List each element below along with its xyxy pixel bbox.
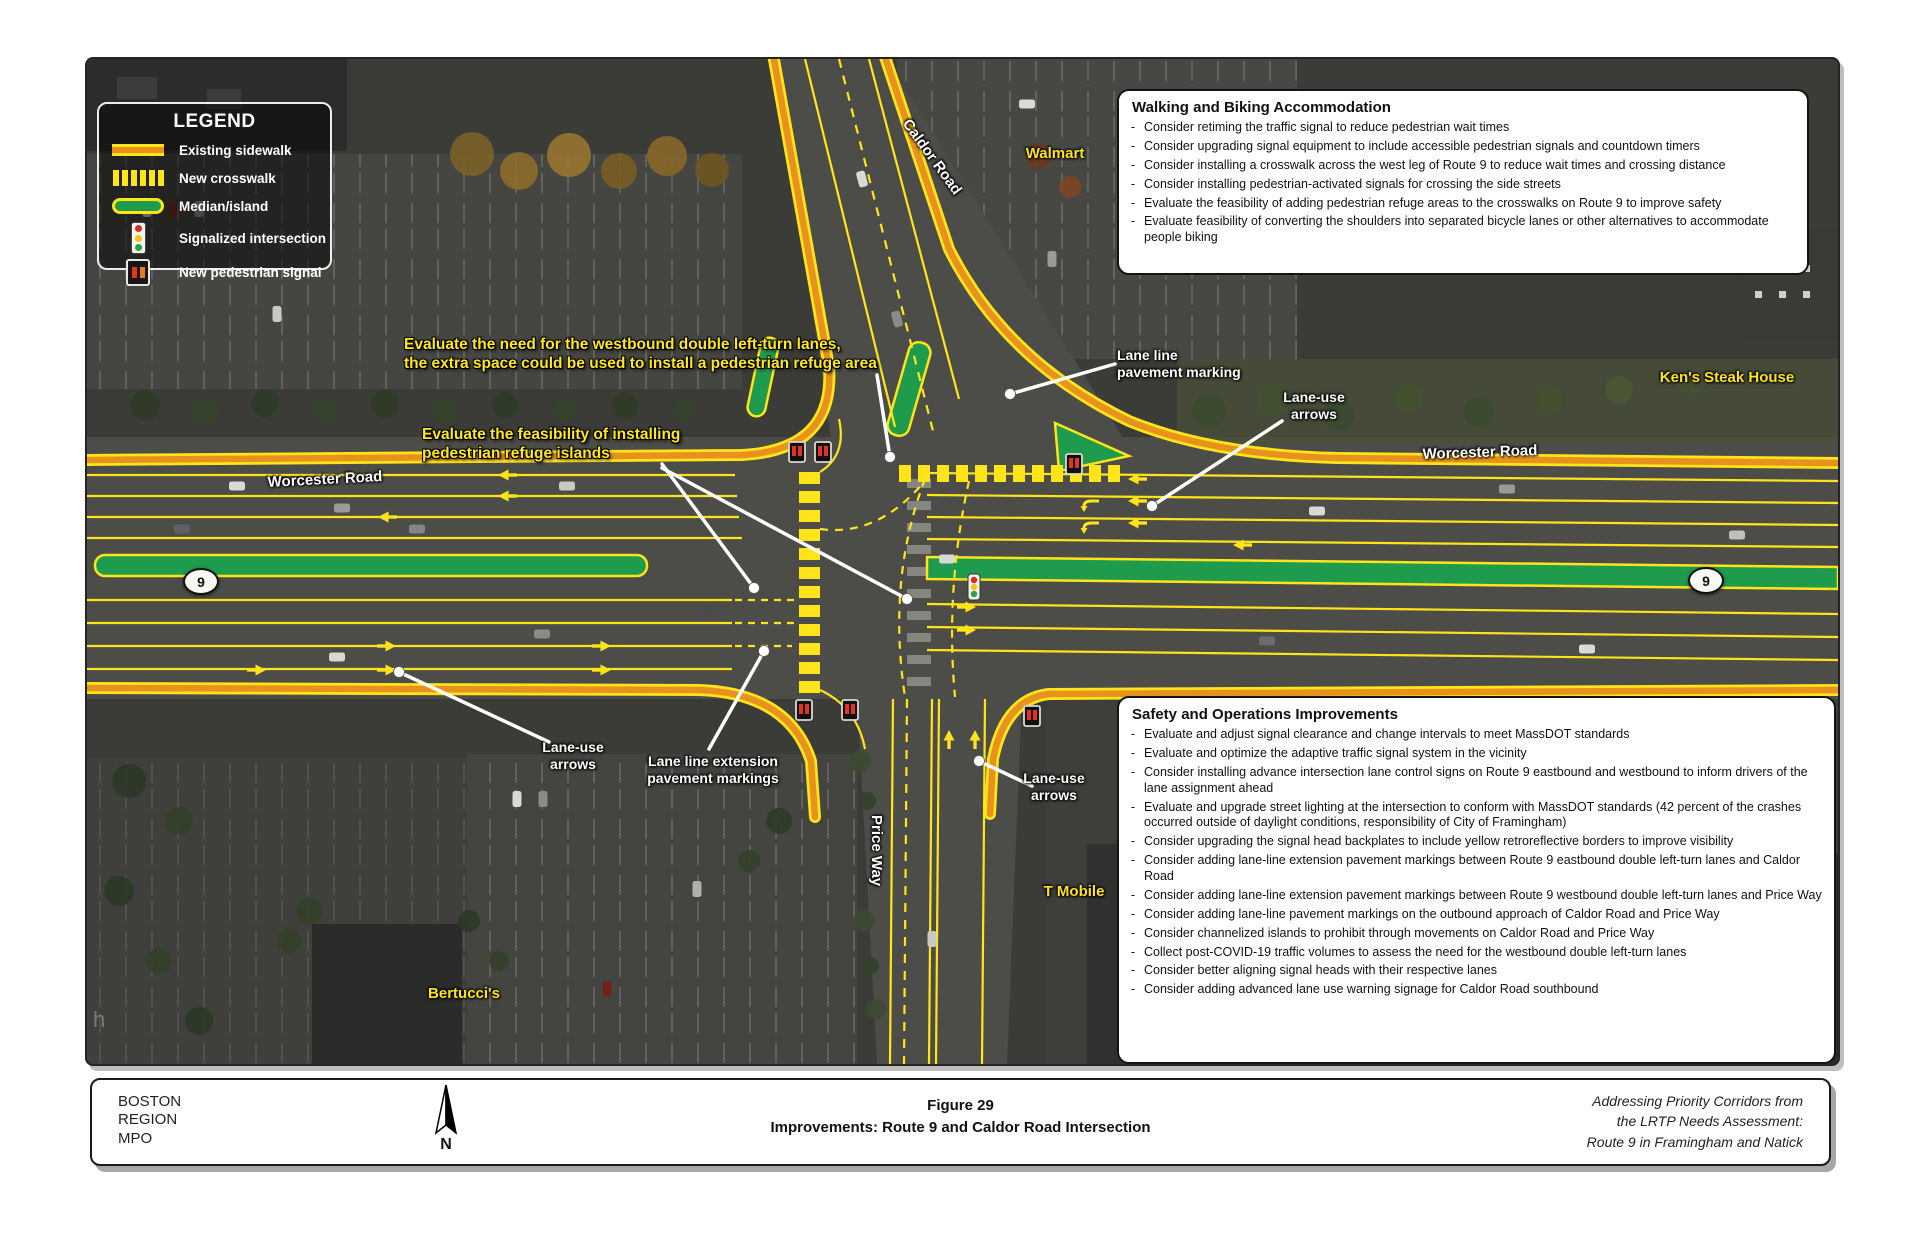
label-price-way: Price Way <box>868 815 885 911</box>
walking-biking-title: Walking and Biking Accommodation <box>1132 99 1795 116</box>
median-route9-west <box>95 555 647 576</box>
bullet-item: - Evaluate and adjust signal clearance a… <box>1129 727 1822 743</box>
figure-caption: Figure 29 Improvements: Route 9 and Cald… <box>92 1095 1829 1139</box>
legend: LEGEND Existing sidewalk New crosswalk M… <box>97 102 332 270</box>
bullet-text: Consider adding advanced lane use warnin… <box>1144 982 1598 998</box>
callout-lane-use-arrows-se: Lane-use arrows <box>1014 770 1094 804</box>
callout-lane-line-pavement-marking: Lane line pavement marking <box>1117 347 1241 381</box>
figure-number: Figure 29 <box>92 1095 1829 1117</box>
bullet-item: - Evaluate and upgrade street lighting a… <box>1129 800 1822 832</box>
safety-operations-box: Safety and Operations Improvements - Eva… <box>1117 696 1836 1064</box>
bullet-dash: - <box>1129 158 1137 174</box>
legend-item-existing-sidewalk: Existing sidewalk <box>109 139 320 161</box>
bullet-text: Evaluate and optimize the adaptive traff… <box>1144 746 1527 762</box>
annotation-refuge-islands: Evaluate the feasibility of installing p… <box>422 425 680 464</box>
bullet-dash: - <box>1129 120 1137 136</box>
label-kens-steak-house: Ken's Steak House <box>1637 369 1817 386</box>
bullet-dash: - <box>1129 888 1137 904</box>
bullet-text: Consider adding lane-line extension pave… <box>1144 853 1822 885</box>
route-9-shield-west: 9 <box>183 568 219 595</box>
legend-item-new-crosswalk: New crosswalk <box>109 167 320 189</box>
bullet-dash: - <box>1129 945 1137 961</box>
bullet-text: Consider channelized islands to prohibit… <box>1144 926 1654 942</box>
bullet-text: Consider upgrading the signal head backp… <box>1144 834 1733 850</box>
safety-operations-bullets: - Evaluate and adjust signal clearance a… <box>1129 727 1822 998</box>
bullet-dash: - <box>1129 982 1137 998</box>
existing-sidewalk-swatch <box>109 144 167 156</box>
safety-operations-title: Safety and Operations Improvements <box>1132 706 1822 723</box>
bullet-dash: - <box>1129 727 1137 743</box>
bullet-text: Consider installing advance intersection… <box>1144 765 1822 797</box>
bullet-item: - Consider installing advance intersecti… <box>1129 765 1822 797</box>
bullet-dash: - <box>1129 177 1137 193</box>
bullet-dash: - <box>1129 907 1137 923</box>
annotation-westbound-left-turn: Evaluate the need for the westbound doub… <box>404 335 877 374</box>
bullet-item: - Consider installing a crosswalk across… <box>1129 158 1795 174</box>
bullet-item: - Consider channelized islands to prohib… <box>1129 926 1822 942</box>
bullet-text: Evaluate and adjust signal clearance and… <box>1144 727 1629 743</box>
label-t-mobile: T Mobile <box>1024 883 1124 900</box>
bullet-item: - Consider adding lane-line extension pa… <box>1129 888 1822 904</box>
legend-item-signalized-intersection: Signalized intersection <box>109 223 320 253</box>
bullet-dash: - <box>1129 214 1137 246</box>
bullet-dash: - <box>1129 139 1137 155</box>
bullet-dash: - <box>1129 196 1137 212</box>
label-bertuccis: Bertucci's <box>404 985 524 1002</box>
walking-biking-bullets: - Consider retiming the traffic signal t… <box>1129 120 1795 246</box>
bullet-dash: - <box>1129 926 1137 942</box>
bullet-text: Consider adding lane-line pavement marki… <box>1144 907 1720 923</box>
bullet-text: Evaluate feasibility of converting the s… <box>1144 214 1795 246</box>
new-crosswalk-swatch <box>109 170 167 186</box>
bullet-text: Consider retiming the traffic signal to … <box>1144 120 1509 136</box>
bullet-item: - Consider installing pedestrian-activat… <box>1129 177 1795 193</box>
bullet-item: - Consider upgrading signal equipment to… <box>1129 139 1795 155</box>
bullet-dash: - <box>1129 963 1137 979</box>
bullet-dash: - <box>1129 800 1137 832</box>
bullet-item: - Consider better aligning signal heads … <box>1129 963 1822 979</box>
bullet-text: Consider adding lane-line extension pave… <box>1144 888 1822 904</box>
legend-title: LEGEND <box>109 111 320 133</box>
bullet-dash: - <box>1129 834 1137 850</box>
figure-title: Improvements: Route 9 and Caldor Road In… <box>92 1117 1829 1139</box>
bullet-text: Evaluate and upgrade street lighting at … <box>1144 800 1822 832</box>
bullet-item: - Evaluate the feasibility of adding ped… <box>1129 196 1795 212</box>
bullet-text: Consider installing a crosswalk across t… <box>1144 158 1726 174</box>
route-9-shield-east: 9 <box>1688 567 1724 594</box>
bullet-item: - Evaluate and optimize the adaptive tra… <box>1129 746 1822 762</box>
source-note: Addressing Priority Corridors from the L… <box>1587 1091 1803 1152</box>
walking-biking-box: Walking and Biking Accommodation - Consi… <box>1117 89 1809 275</box>
figure-footer: BOSTON REGION MPO N Figure 29 Improvemen… <box>90 1078 1831 1166</box>
pedestrian-signal-icon <box>109 259 167 286</box>
bullet-text: Consider upgrading signal equipment to i… <box>1144 139 1700 155</box>
legend-item-new-pedestrian-signal: New pedestrian signal <box>109 259 320 285</box>
bullet-item: - Consider upgrading the signal head bac… <box>1129 834 1822 850</box>
label-walmart: Walmart <box>1007 145 1103 162</box>
bullet-dash: - <box>1129 853 1137 885</box>
bullet-dash: - <box>1129 746 1137 762</box>
bullet-item: - Evaluate feasibility of converting the… <box>1129 214 1795 246</box>
imagery-watermark: h <box>93 1007 105 1033</box>
bullet-text: Consider better aligning signal heads wi… <box>1144 963 1497 979</box>
bullet-text: Collect post-COVID-19 traffic volumes to… <box>1144 945 1686 961</box>
traffic-signal-icon <box>968 574 980 600</box>
callout-lane-use-arrows-ne: Lane-use arrows <box>1274 389 1354 423</box>
bullet-text: Evaluate the feasibility of adding pedes… <box>1144 196 1721 212</box>
traffic-light-icon <box>109 222 167 254</box>
callout-lane-use-arrows-sw: Lane-use arrows <box>533 739 613 773</box>
callout-lane-line-extension: Lane line extension pavement markings <box>633 753 793 787</box>
legend-item-median-island: Median/island <box>109 195 320 217</box>
bullet-item: - Consider retiming the traffic signal t… <box>1129 120 1795 136</box>
aerial-map-figure: Walmart Caldor Road Ken's Steak House Wo… <box>85 57 1840 1066</box>
bullet-dash: - <box>1129 765 1137 797</box>
bullet-item: - Consider adding lane-line pavement mar… <box>1129 907 1822 923</box>
bullet-item: - Collect post-COVID-19 traffic volumes … <box>1129 945 1822 961</box>
median-island-swatch <box>109 198 167 214</box>
page: { "legend": { "title": "LEGEND", "items"… <box>0 0 1913 1238</box>
bullet-item: - Consider adding lane-line extension pa… <box>1129 853 1822 885</box>
bullet-item: - Consider adding advanced lane use warn… <box>1129 982 1822 998</box>
bullet-text: Consider installing pedestrian-activated… <box>1144 177 1561 193</box>
